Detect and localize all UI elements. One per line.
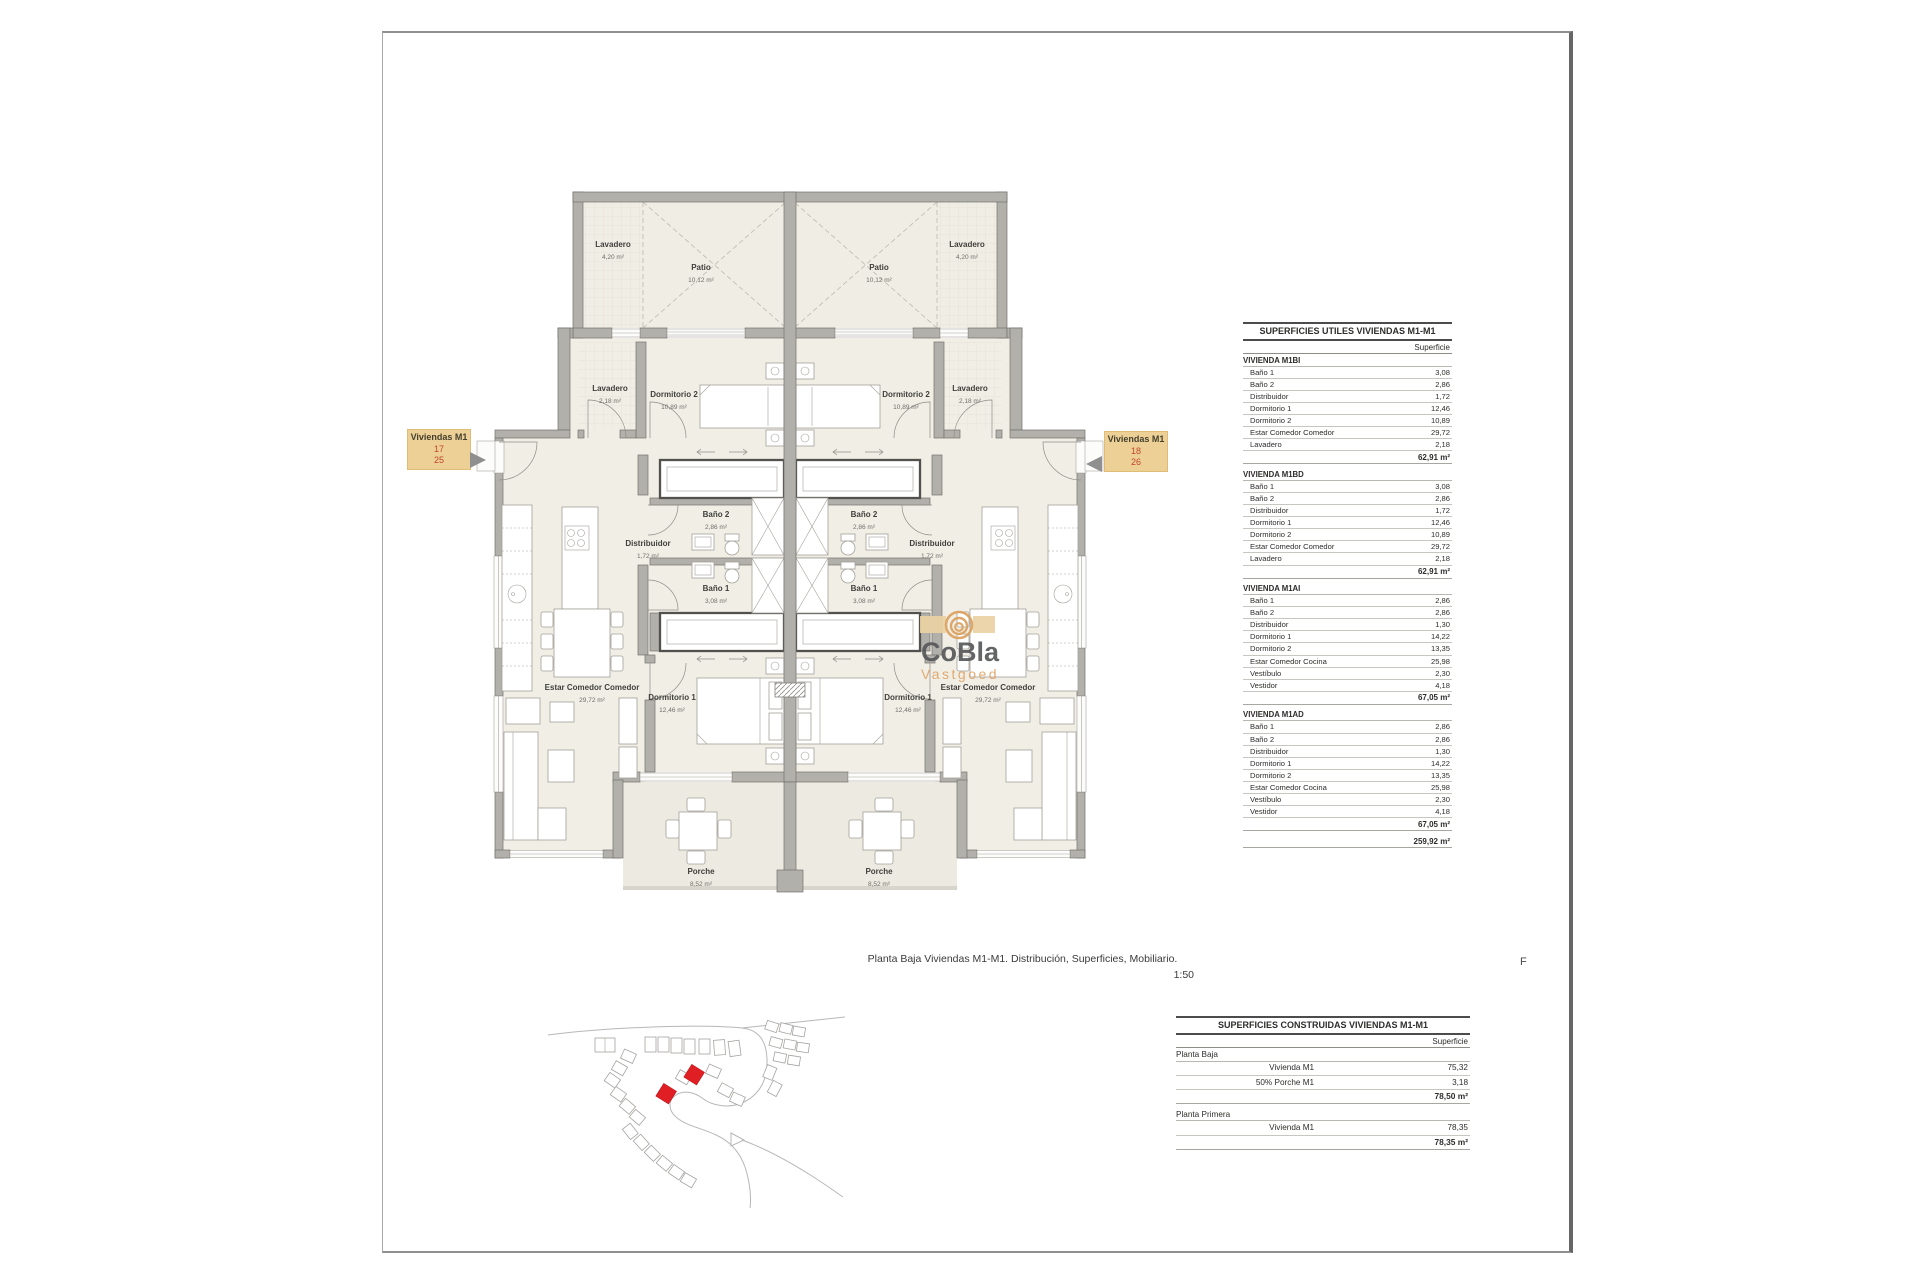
table-row: Distribuidor1,72 bbox=[1243, 391, 1452, 403]
room-label: Patio bbox=[869, 263, 889, 272]
row-value: 2,86 bbox=[1435, 735, 1450, 744]
room-label: Dormitorio 2 bbox=[650, 390, 698, 399]
row-label: Vestidor bbox=[1250, 681, 1277, 690]
room-area: 2,86 m² bbox=[853, 524, 876, 531]
row-label: Lavadero bbox=[1250, 554, 1282, 563]
table-section-total: 78,35 m² bbox=[1176, 1136, 1470, 1150]
row-label: Dormitorio 2 bbox=[1250, 771, 1291, 780]
row-value: 14,22 bbox=[1431, 759, 1450, 768]
table-gap bbox=[1176, 1150, 1470, 1154]
table-superficies-utiles: SUPERFICIES UTILES VIVIENDAS M1-M1Superf… bbox=[1243, 322, 1452, 848]
table-row: Distribuidor1,72 bbox=[1243, 505, 1452, 517]
row-value: 25,98 bbox=[1431, 657, 1450, 666]
table-row: Distribuidor1,30 bbox=[1243, 619, 1452, 631]
table-column-header: Superficie bbox=[1243, 341, 1452, 354]
floor-plan-svg: Lavadero 4,20 m² Patio 10,12 m² Lavadero… bbox=[0, 0, 1920, 1280]
row-value: 1,72 bbox=[1435, 392, 1450, 401]
unit-callout-number: 17 bbox=[407, 444, 471, 455]
table-row: Baño 22,86 bbox=[1243, 607, 1452, 619]
table-row: Dormitorio 112,46 bbox=[1243, 403, 1452, 415]
arrow-right-icon bbox=[470, 452, 486, 468]
row-value: 29,72 bbox=[1431, 428, 1450, 437]
room-area: 10,12 m² bbox=[688, 277, 714, 284]
row-label: 50% Porche M1 bbox=[1183, 1078, 1314, 1088]
row-label: Vestidor bbox=[1250, 807, 1277, 816]
room-area: 8,52 m² bbox=[868, 881, 891, 888]
room-label: Dormitorio 2 bbox=[882, 390, 930, 399]
table-column-header: Superficie bbox=[1176, 1035, 1470, 1048]
row-label: Estar Comedor Comedor bbox=[1250, 542, 1334, 551]
row-value: 2,30 bbox=[1435, 795, 1450, 804]
row-value: 12,46 bbox=[1431, 518, 1450, 527]
unit-callout-title: Viviendas M1 bbox=[407, 432, 471, 444]
watermark-bar-icon bbox=[973, 616, 995, 633]
row-label: Dormitorio 2 bbox=[1250, 644, 1291, 653]
row-label: Dormitorio 2 bbox=[1250, 416, 1291, 425]
table-section-header: VIVIENDA M1AD bbox=[1243, 709, 1452, 722]
row-label: Distribuidor bbox=[1250, 392, 1288, 401]
table-row: Baño 22,86 bbox=[1243, 379, 1452, 391]
room-label: Porche bbox=[865, 867, 893, 876]
row-label: Baño 2 bbox=[1250, 494, 1274, 503]
table-row: Vestíbulo2,30 bbox=[1243, 668, 1452, 680]
row-label: Baño 1 bbox=[1250, 368, 1274, 377]
table-row: Dormitorio 213,35 bbox=[1243, 643, 1452, 655]
row-value: 2,86 bbox=[1435, 380, 1450, 389]
room-label: Baño 2 bbox=[851, 510, 878, 519]
room-label: Dormitorio 1 bbox=[884, 693, 932, 702]
room-area: 4,20 m² bbox=[602, 254, 625, 261]
plan-caption: Planta Baja Viviendas M1-M1. Distribució… bbox=[770, 953, 1275, 965]
table-section-total: 62,91 m² bbox=[1243, 451, 1452, 464]
table-section-total: 78,50 m² bbox=[1176, 1090, 1470, 1104]
room-area: 2,86 m² bbox=[705, 524, 728, 531]
table-row: Dormitorio 213,35 bbox=[1243, 770, 1452, 782]
row-value: 10,89 bbox=[1431, 530, 1450, 539]
table-row: Baño 12,86 bbox=[1243, 721, 1452, 733]
table-row: Baño 13,08 bbox=[1243, 367, 1452, 379]
table-section-total: 67,05 m² bbox=[1243, 692, 1452, 705]
room-label: Distribuidor bbox=[625, 539, 670, 548]
row-label: Dormitorio 1 bbox=[1250, 759, 1291, 768]
room-area: 8,52 m² bbox=[690, 881, 713, 888]
drawing-page: Lavadero 4,20 m² Patio 10,12 m² Lavadero… bbox=[0, 0, 1920, 1280]
row-value: 25,98 bbox=[1431, 783, 1450, 792]
room-label: Lavadero bbox=[595, 240, 631, 249]
room-area: 10,89 m² bbox=[893, 404, 919, 411]
room-area: 3,08 m² bbox=[705, 598, 728, 605]
row-value: 3,08 bbox=[1435, 482, 1450, 491]
row-value: 2,86 bbox=[1435, 596, 1450, 605]
row-label: Vestíbulo bbox=[1250, 795, 1281, 804]
row-label: Distribuidor bbox=[1250, 620, 1288, 629]
watermark-sub: Vastgoed bbox=[921, 666, 999, 682]
room-label: Patio bbox=[691, 263, 711, 272]
watermark-brand: CoBla bbox=[921, 637, 1000, 667]
room-area: 10,12 m² bbox=[866, 277, 892, 284]
room-area: 4,20 m² bbox=[956, 254, 979, 261]
room-label: Lavadero bbox=[952, 384, 988, 393]
row-value: 3,18 bbox=[1452, 1078, 1468, 1088]
table-row: Distribuidor1,30 bbox=[1243, 746, 1452, 758]
table-row: Estar Comedor Cocina25,98 bbox=[1243, 782, 1452, 794]
row-label: Lavadero bbox=[1250, 440, 1282, 449]
row-label: Estar Comedor Comedor bbox=[1250, 428, 1334, 437]
row-value: 1,72 bbox=[1435, 506, 1450, 515]
site-houses bbox=[595, 1020, 809, 1187]
room-label: Distribuidor bbox=[909, 539, 954, 548]
room-label: Lavadero bbox=[592, 384, 628, 393]
row-label: Dormitorio 1 bbox=[1250, 404, 1291, 413]
row-label: Baño 1 bbox=[1250, 482, 1274, 491]
row-label: Baño 2 bbox=[1250, 380, 1274, 389]
row-value: 2,86 bbox=[1435, 722, 1450, 731]
room-label: Dormitorio 1 bbox=[648, 693, 696, 702]
row-value: 13,35 bbox=[1431, 771, 1450, 780]
unit-callout-left: Viviendas M1 17 25 bbox=[407, 429, 471, 470]
table-title: SUPERFICIES CONSTRUIDAS VIVIENDAS M1-M1 bbox=[1176, 1016, 1470, 1035]
room-label: Porche bbox=[687, 867, 715, 876]
row-value: 4,18 bbox=[1435, 681, 1450, 690]
row-value: 2,18 bbox=[1435, 440, 1450, 449]
unit-callout-title: Viviendas M1 bbox=[1104, 434, 1168, 446]
table-row: Baño 22,86 bbox=[1243, 493, 1452, 505]
table-row: Estar Comedor Cocina25,98 bbox=[1243, 656, 1452, 668]
room-area: 2,18 m² bbox=[599, 398, 622, 405]
row-label: Estar Comedor Cocina bbox=[1250, 657, 1327, 666]
table-row: Vestidor4,18 bbox=[1243, 806, 1452, 818]
table-row: Estar Comedor Comedor29,72 bbox=[1243, 427, 1452, 439]
table-section-header: VIVIENDA M1AI bbox=[1243, 583, 1452, 596]
room-area: 29,72 m² bbox=[579, 697, 605, 704]
unit-callout-number: 26 bbox=[1104, 457, 1168, 468]
table-row: Dormitorio 210,89 bbox=[1243, 529, 1452, 541]
table-row: 50% Porche M13,18 bbox=[1176, 1076, 1470, 1090]
row-label: Baño 2 bbox=[1250, 608, 1274, 617]
row-label: Distribuidor bbox=[1250, 506, 1288, 515]
table-row: Baño 22,86 bbox=[1243, 734, 1452, 746]
table-row: Lavadero2,18 bbox=[1243, 553, 1452, 565]
row-value: 2,18 bbox=[1435, 554, 1450, 563]
room-area: 2,18 m² bbox=[959, 398, 982, 405]
room-area: 12,46 m² bbox=[895, 707, 921, 714]
room-label: Lavadero bbox=[949, 240, 985, 249]
room-label: Estar Comedor Comedor bbox=[545, 683, 640, 692]
plan-scale: 1:50 bbox=[1146, 969, 1194, 981]
row-label: Dormitorio 2 bbox=[1250, 530, 1291, 539]
unit-callout-number: 18 bbox=[1104, 446, 1168, 457]
room-area: 1,72 m² bbox=[921, 553, 944, 560]
table-row: Lavadero2,18 bbox=[1243, 439, 1452, 451]
room-area: 29,72 m² bbox=[975, 697, 1001, 704]
row-label: Vivienda M1 bbox=[1183, 1123, 1314, 1133]
row-value: 14,22 bbox=[1431, 632, 1450, 641]
table-row: Dormitorio 112,46 bbox=[1243, 517, 1452, 529]
table-row: Baño 13,08 bbox=[1243, 481, 1452, 493]
table-section-header: VIVIENDA M1BI bbox=[1243, 354, 1452, 367]
table-row: Vestidor4,18 bbox=[1243, 680, 1452, 692]
table-section-header: Planta Primera bbox=[1176, 1108, 1470, 1122]
row-value: 13,35 bbox=[1431, 644, 1450, 653]
row-value: 3,08 bbox=[1435, 368, 1450, 377]
row-label: Baño 2 bbox=[1250, 735, 1274, 744]
table-grand-total: 259,92 m² bbox=[1243, 835, 1452, 848]
table-row: Baño 12,86 bbox=[1243, 595, 1452, 607]
row-value: 12,46 bbox=[1431, 404, 1450, 413]
watermark-bar-icon bbox=[920, 616, 946, 633]
table-section-total: 67,05 m² bbox=[1243, 818, 1452, 831]
room-area: 12,46 m² bbox=[659, 707, 685, 714]
sheet-letter-f: F bbox=[1520, 956, 1527, 968]
row-value: 75,32 bbox=[1448, 1063, 1469, 1073]
table-row: Dormitorio 114,22 bbox=[1243, 758, 1452, 770]
room-area: 3,08 m² bbox=[853, 598, 876, 605]
row-label: Baño 1 bbox=[1250, 722, 1274, 731]
table-title: SUPERFICIES UTILES VIVIENDAS M1-M1 bbox=[1243, 322, 1452, 341]
row-label: Estar Comedor Cocina bbox=[1250, 783, 1327, 792]
table-superficies-construidas: SUPERFICIES CONSTRUIDAS VIVIENDAS M1-M1S… bbox=[1176, 1016, 1470, 1154]
room-label: Estar Comedor Comedor bbox=[941, 683, 1036, 692]
table-row: Estar Comedor Comedor29,72 bbox=[1243, 541, 1452, 553]
table-section-total: 62,91 m² bbox=[1243, 566, 1452, 579]
row-label: Distribuidor bbox=[1250, 747, 1288, 756]
table-row: Vivienda M175,32 bbox=[1176, 1062, 1470, 1076]
table-row: Vestíbulo2,30 bbox=[1243, 794, 1452, 806]
watermark-logo: CoBla Vastgoed bbox=[920, 612, 1000, 682]
table-row: Vivienda M178,35 bbox=[1176, 1121, 1470, 1135]
row-value: 1,30 bbox=[1435, 620, 1450, 629]
row-value: 2,30 bbox=[1435, 669, 1450, 678]
table-row: Dormitorio 210,89 bbox=[1243, 415, 1452, 427]
row-label: Dormitorio 1 bbox=[1250, 518, 1291, 527]
row-label: Dormitorio 1 bbox=[1250, 632, 1291, 641]
room-area: 10,89 m² bbox=[661, 404, 687, 411]
row-value: 4,18 bbox=[1435, 807, 1450, 816]
table-section-header: Planta Baja bbox=[1176, 1048, 1470, 1062]
room-area: 1,72 m² bbox=[637, 553, 660, 560]
row-value: 29,72 bbox=[1431, 542, 1450, 551]
table-row: Dormitorio 114,22 bbox=[1243, 631, 1452, 643]
table-section-header: VIVIENDA M1BD bbox=[1243, 468, 1452, 481]
room-label: Baño 1 bbox=[703, 584, 730, 593]
room-label: Baño 2 bbox=[703, 510, 730, 519]
row-value: 2,86 bbox=[1435, 608, 1450, 617]
row-value: 2,86 bbox=[1435, 494, 1450, 503]
unit-callout-right: Viviendas M1 18 26 bbox=[1104, 431, 1168, 472]
room-label: Baño 1 bbox=[851, 584, 878, 593]
row-value: 78,35 bbox=[1448, 1123, 1469, 1133]
row-label: Vestíbulo bbox=[1250, 669, 1281, 678]
row-value: 1,30 bbox=[1435, 747, 1450, 756]
arrow-left-icon bbox=[1086, 456, 1102, 472]
site-plan-map bbox=[548, 1017, 845, 1208]
unit-callout-number: 25 bbox=[407, 455, 471, 466]
row-value: 10,89 bbox=[1431, 416, 1450, 425]
site-plan-highlight-house bbox=[656, 1083, 677, 1104]
row-label: Vivienda M1 bbox=[1183, 1063, 1314, 1073]
row-label: Baño 1 bbox=[1250, 596, 1274, 605]
